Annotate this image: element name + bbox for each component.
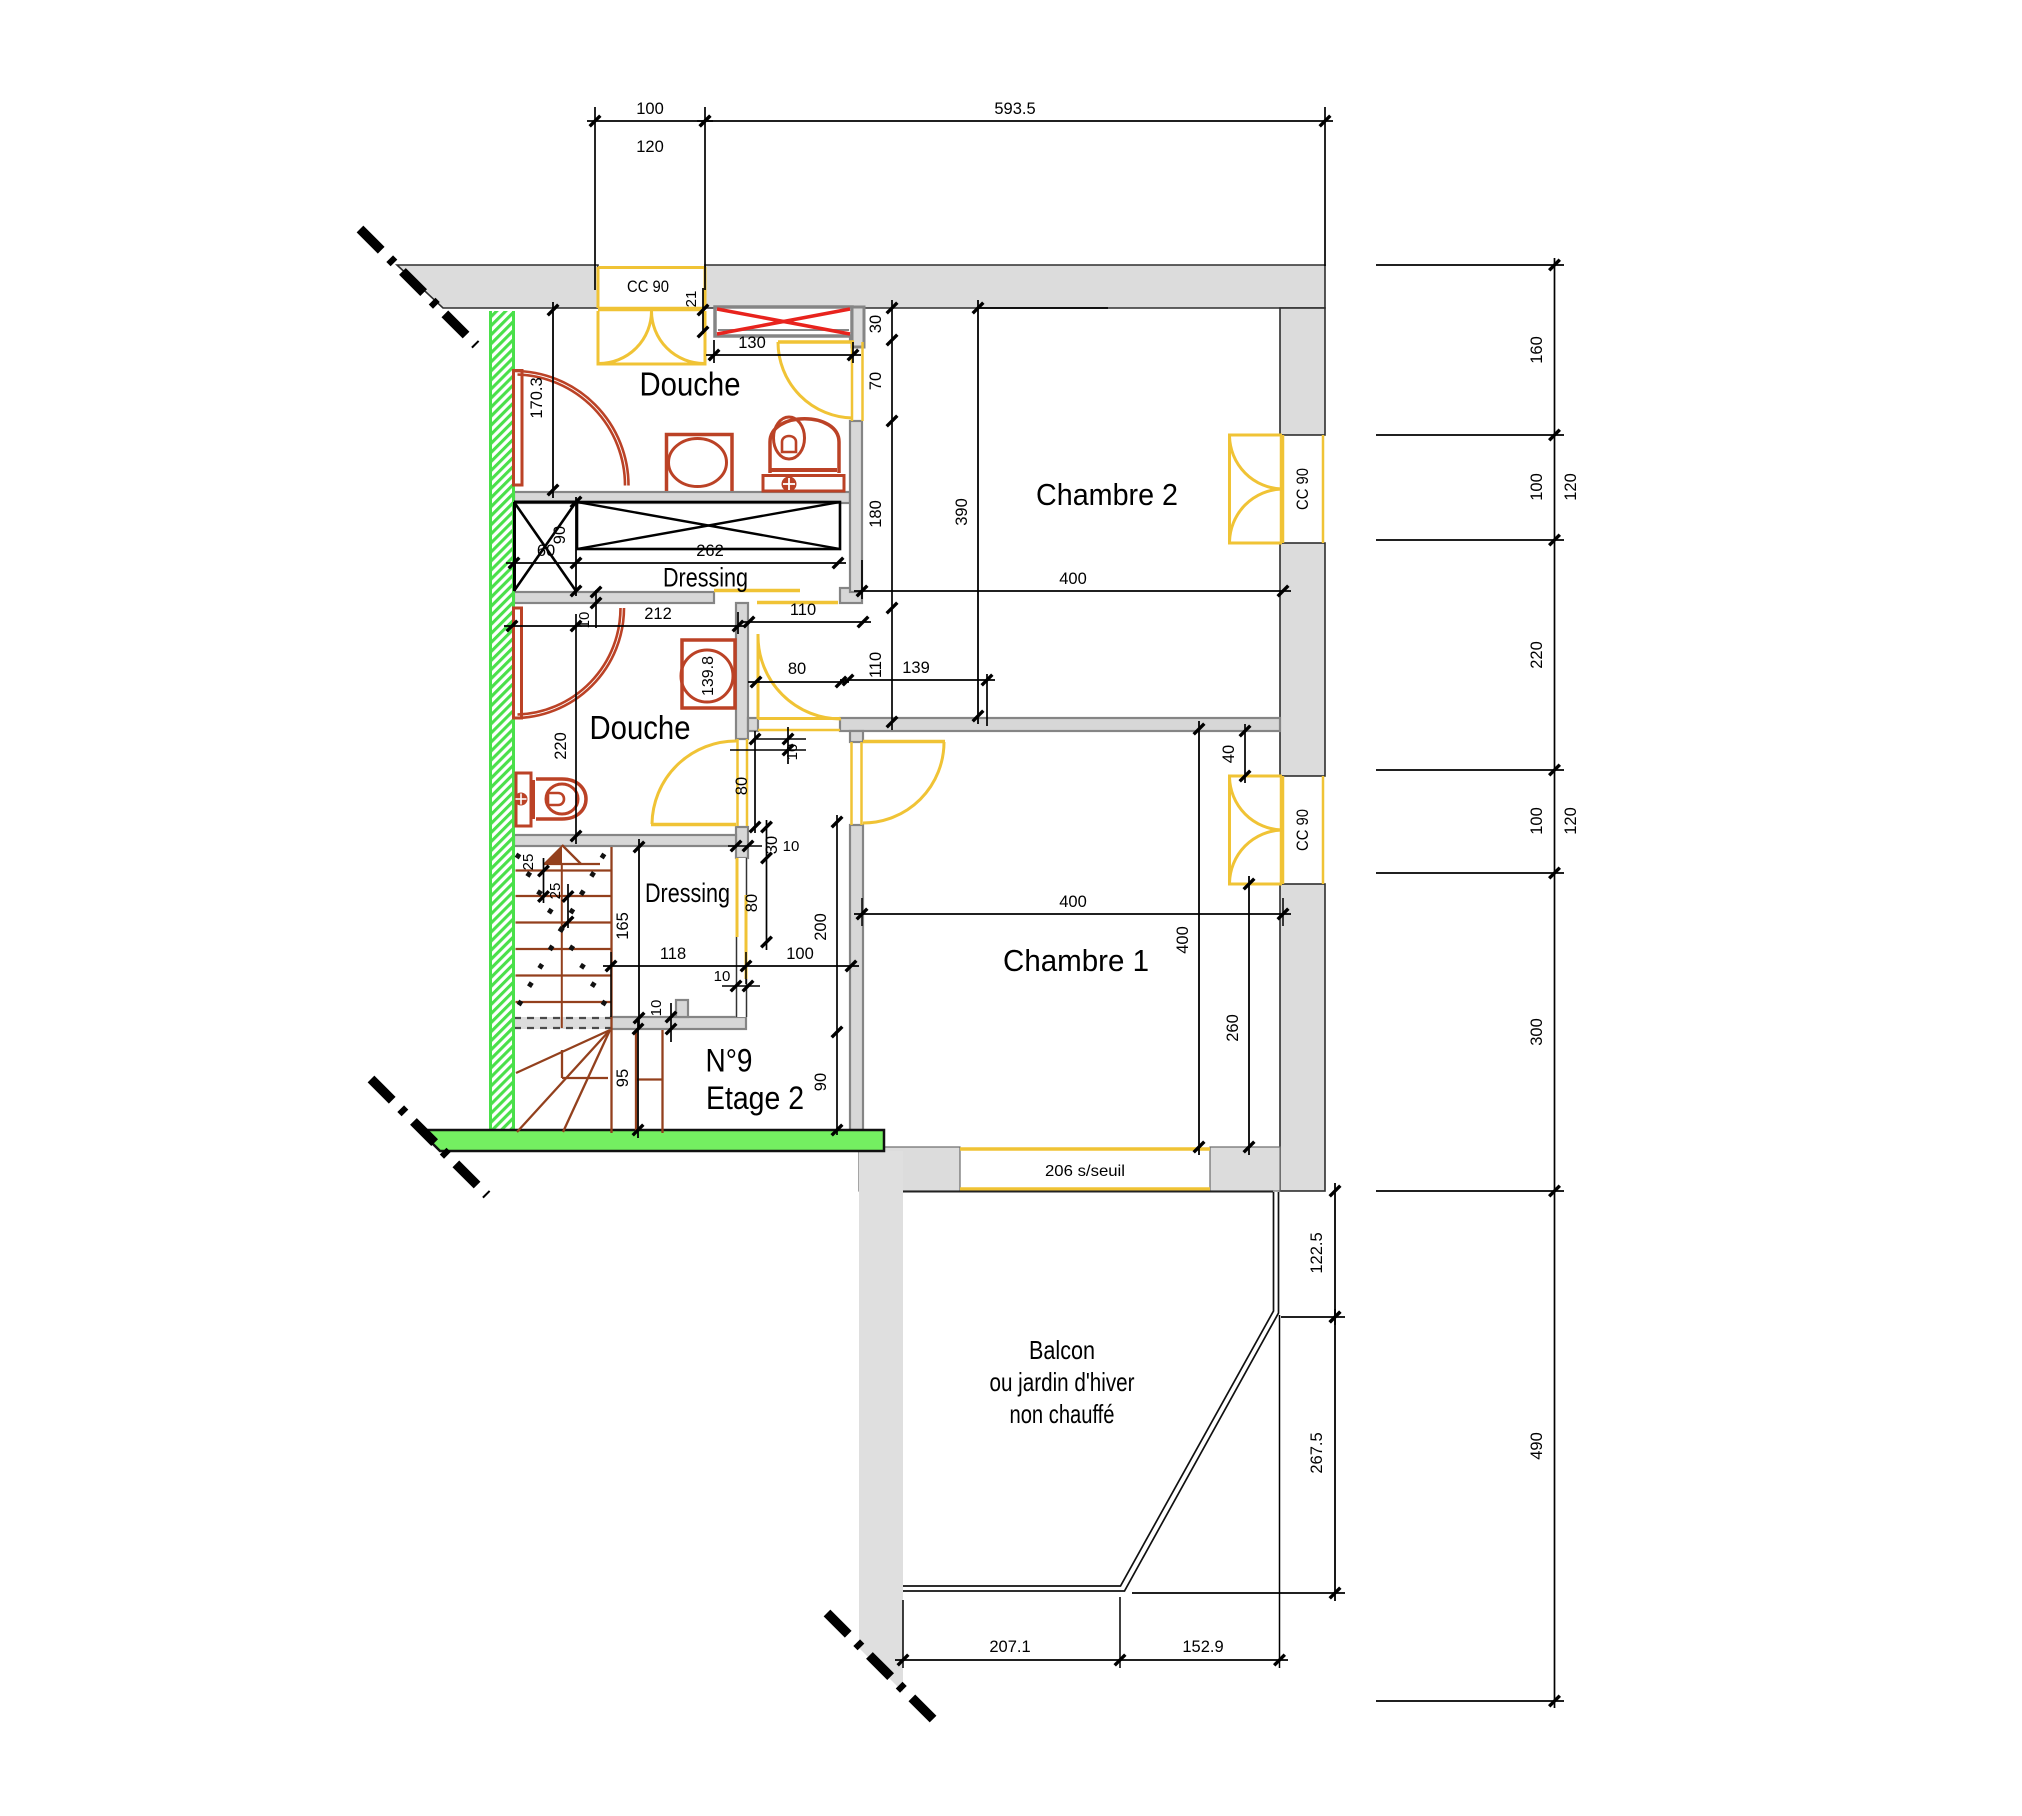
- svg-text:CC 90: CC 90: [1294, 468, 1312, 510]
- svg-text:Dressing: Dressing: [663, 563, 748, 593]
- svg-text:10: 10: [648, 1000, 665, 1017]
- svg-text:212: 212: [644, 605, 672, 623]
- svg-text:Douche: Douche: [590, 709, 691, 746]
- svg-text:120: 120: [636, 138, 664, 156]
- svg-text:152.9: 152.9: [1182, 1638, 1223, 1656]
- svg-text:120: 120: [1562, 807, 1580, 835]
- svg-text:90: 90: [812, 1073, 830, 1091]
- svg-text:100: 100: [636, 100, 664, 118]
- svg-text:Dressing: Dressing: [645, 878, 730, 908]
- svg-text:593.5: 593.5: [994, 100, 1035, 118]
- svg-text:95: 95: [614, 1069, 632, 1087]
- svg-text:400: 400: [1059, 570, 1087, 588]
- svg-text:10: 10: [714, 968, 731, 985]
- svg-text:10: 10: [783, 838, 800, 855]
- svg-text:21: 21: [683, 291, 700, 308]
- svg-text:100: 100: [786, 945, 814, 963]
- svg-text:220: 220: [1528, 641, 1546, 669]
- svg-text:139.8: 139.8: [700, 656, 717, 696]
- svg-text:207.1: 207.1: [989, 1638, 1030, 1656]
- svg-text:165: 165: [614, 912, 632, 940]
- svg-text:100: 100: [1528, 807, 1546, 835]
- svg-text:120: 120: [1562, 473, 1580, 501]
- svg-text:180: 180: [867, 500, 885, 528]
- svg-text:N°9: N°9: [706, 1043, 753, 1079]
- svg-text:Douche: Douche: [640, 366, 741, 403]
- svg-text:118: 118: [660, 945, 686, 963]
- svg-text:220: 220: [552, 732, 570, 760]
- svg-text:Etage 2: Etage 2: [706, 1080, 804, 1116]
- svg-text:ou jardin d'hiver: ou jardin d'hiver: [990, 1367, 1135, 1397]
- svg-text:262: 262: [696, 542, 724, 560]
- svg-text:25: 25: [547, 883, 564, 900]
- svg-text:139: 139: [902, 659, 930, 677]
- svg-text:267.5: 267.5: [1308, 1432, 1326, 1473]
- svg-text:40: 40: [1220, 745, 1238, 763]
- svg-text:390: 390: [953, 498, 971, 526]
- svg-text:200: 200: [812, 913, 830, 941]
- svg-text:CC 90: CC 90: [1294, 809, 1312, 851]
- svg-text:206 s/seuil: 206 s/seuil: [1045, 1163, 1125, 1180]
- svg-text:130: 130: [738, 334, 766, 352]
- svg-text:170.3: 170.3: [528, 377, 546, 418]
- svg-text:Chambre 1: Chambre 1: [1003, 943, 1149, 978]
- svg-text:260: 260: [1224, 1014, 1242, 1042]
- svg-text:490: 490: [1528, 1432, 1546, 1460]
- svg-text:non chauffé: non chauffé: [1010, 1399, 1115, 1429]
- svg-text:400: 400: [1059, 893, 1087, 911]
- svg-text:80: 80: [733, 777, 751, 795]
- svg-text:90: 90: [551, 526, 569, 544]
- svg-text:160: 160: [1528, 336, 1546, 364]
- svg-text:Balcon: Balcon: [1029, 1335, 1095, 1365]
- svg-text:100: 100: [1528, 473, 1546, 501]
- svg-text:30: 30: [867, 315, 885, 333]
- svg-text:30: 30: [763, 836, 781, 854]
- svg-text:122.5: 122.5: [1308, 1232, 1326, 1273]
- svg-text:25: 25: [520, 854, 537, 871]
- svg-text:300: 300: [1528, 1018, 1546, 1046]
- svg-text:Chambre 2: Chambre 2: [1036, 477, 1178, 512]
- svg-text:70: 70: [867, 372, 885, 390]
- svg-text:400: 400: [1174, 926, 1192, 954]
- svg-text:CC 90: CC 90: [627, 278, 669, 296]
- svg-text:10: 10: [784, 744, 801, 761]
- svg-text:80: 80: [743, 894, 761, 912]
- svg-text:80: 80: [788, 660, 806, 678]
- svg-text:110: 110: [867, 652, 885, 678]
- svg-text:110: 110: [790, 601, 816, 619]
